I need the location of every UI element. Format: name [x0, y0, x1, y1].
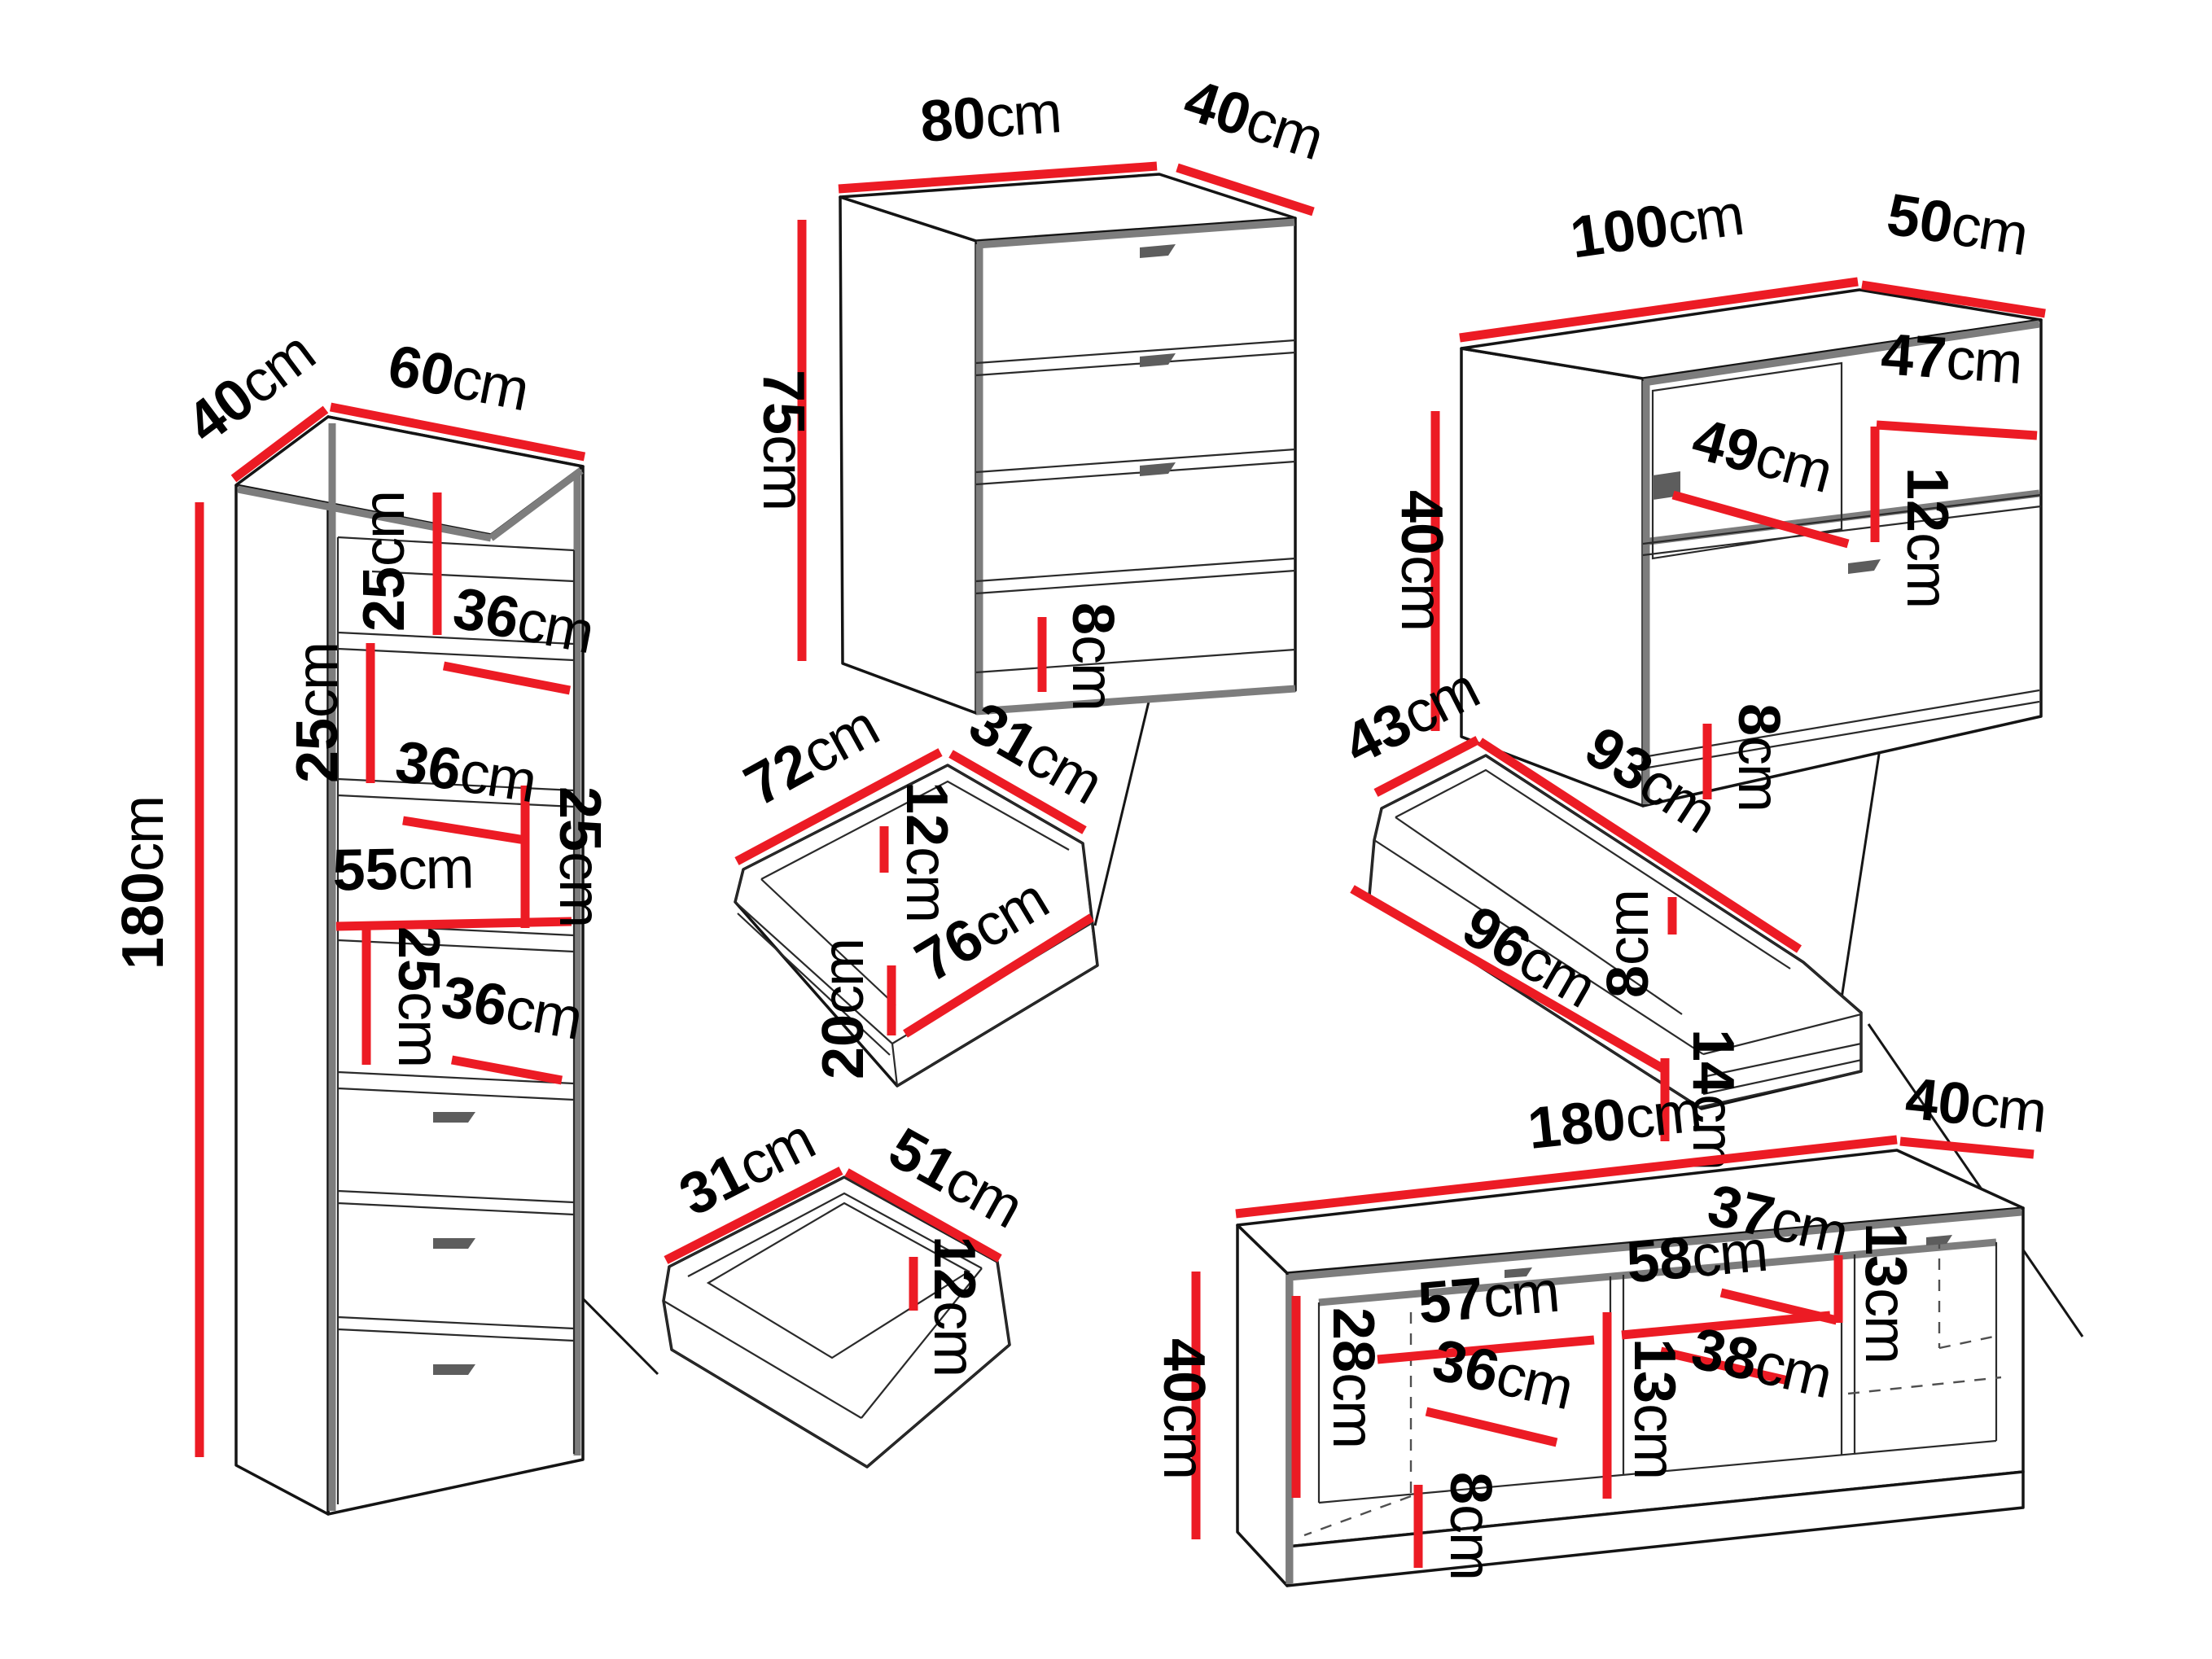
- chest-drawer-drawing: 72cm 31cm 12cm 76cm 20cm: [734, 690, 1113, 1086]
- dim-chest-drawer-inner-h: 12cm: [894, 781, 959, 921]
- dim-chest-drawer-outer-w: 72cm: [734, 694, 888, 818]
- dim-tv-stand-height: 40cm: [1151, 1338, 1216, 1478]
- dim-chest-height: 75cm: [751, 370, 816, 510]
- dim-bookcase-shelf-h2: 25cm: [285, 643, 350, 783]
- dim-tv-cabinet-depth: 50cm: [1883, 182, 2031, 268]
- dim-bookcase-width: 60cm: [383, 333, 532, 423]
- dim-chest-plinth: 8cm: [1060, 602, 1125, 710]
- tv-cabinet-drawing: 100cm 50cm 40cm 49cm 47cm 12cm 8cm: [1389, 182, 2045, 811]
- dim-tv-stand-bay2-w: 58cm: [1624, 1219, 1769, 1296]
- dim-chest-width: 80cm: [918, 80, 1062, 155]
- dim-bookcase-shelf-h1: 25cm: [352, 492, 417, 632]
- chest-side: [840, 197, 976, 713]
- dim-tv-cabinet-width: 100cm: [1566, 182, 1746, 271]
- dim-tv-cabinet-height: 40cm: [1389, 490, 1454, 630]
- bookcase-side: [236, 417, 328, 1514]
- furniture-dimension-diagram: 40cm 60cm 180cm 25cm 36cm 25cm 36cm 25cm…: [0, 0, 2212, 1659]
- dim-tv-stand-divider2: 13cm: [1853, 1223, 1918, 1363]
- dim-chest-drawer-front-h: 20cm: [811, 939, 876, 1079]
- diagram-canvas: 40cm 60cm 180cm 25cm 36cm 25cm 36cm 25cm…: [0, 0, 2212, 1659]
- dim-chest-depth: 40cm: [1176, 68, 1329, 173]
- dim-tv-stand-width: 180cm: [1525, 1079, 1703, 1162]
- dim-bookcase-span: 55cm: [332, 836, 473, 904]
- dim-tv-stand-divider1: 13cm: [1622, 1338, 1687, 1478]
- tv-stand-side: [1237, 1225, 1287, 1586]
- dim-tv-stand-depth: 40cm: [1903, 1066, 2048, 1145]
- chest-of-drawers-drawing: 80cm 40cm 75cm 8cm: [751, 68, 1330, 713]
- dim-bookcase-shelf-h3: 25cm: [547, 786, 612, 926]
- dim-tv-cabinet-niche-h: 12cm: [1894, 467, 1960, 607]
- dim-bookcase-shelf-h4: 25cm: [386, 926, 451, 1066]
- dim-tv-drawer-inner-h: 8cm: [1596, 891, 1661, 998]
- bookcase-drawer-drawing: 31cm 51cm 12cm: [664, 1107, 1032, 1467]
- dim-tv-cabinet-plinth: 8cm: [1726, 703, 1791, 811]
- dim-bookcase-height: 180cm: [111, 797, 176, 970]
- dim-tv-stand-plinth: 8cm: [1438, 1472, 1503, 1579]
- bookcase-drawing: 40cm 60cm 180cm 25cm 36cm 25cm 36cm 25cm…: [111, 320, 612, 1514]
- dim-tv-cabinet-niche: 47cm: [1879, 322, 2023, 396]
- tv-stand-drawing: 180cm 40cm 40cm 28cm 57cm 36cm 8cm 13cm …: [1151, 1066, 2048, 1586]
- dim-bookcase-drawer-inner-h: 12cm: [922, 1236, 987, 1376]
- dim-tv-drawer-depth: 43cm: [1334, 656, 1488, 777]
- dim-tv-stand-niche-h: 28cm: [1321, 1307, 1386, 1447]
- dim-tv-stand-bay1-w: 57cm: [1416, 1259, 1561, 1337]
